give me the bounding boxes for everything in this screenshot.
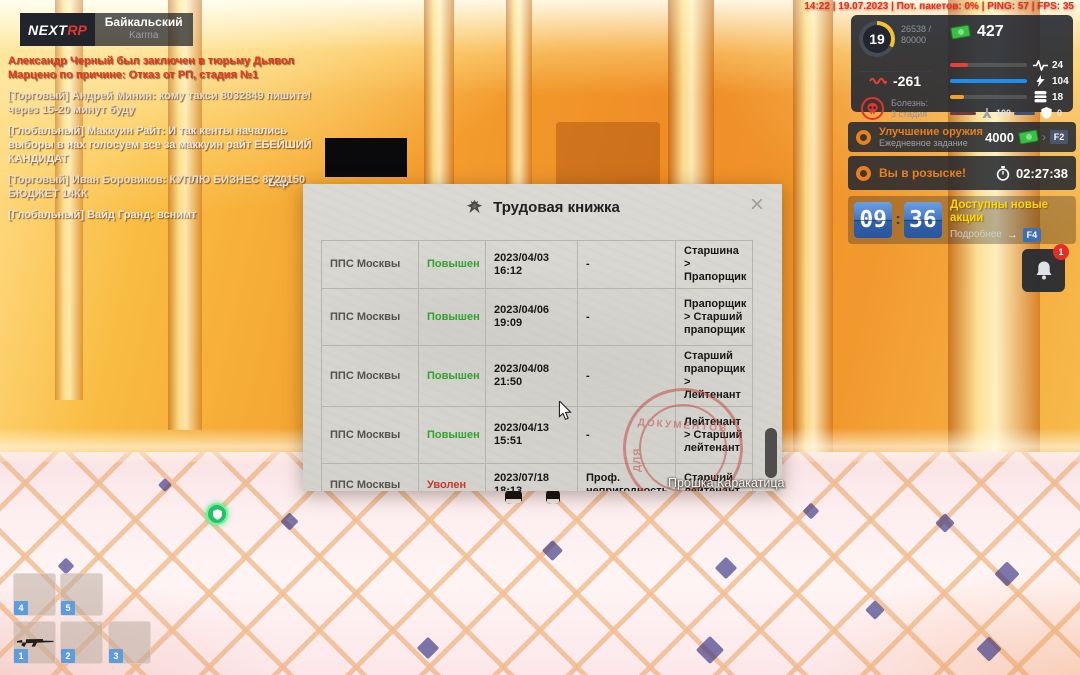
hotkey-f2-badge[interactable]: F2 [1050,130,1068,144]
game-screen: Бар NEXT RP Байкальский Karma Александр … [0,0,1080,675]
health-bar: 24 [950,59,1072,71]
oxygen-value: 100 [996,108,1011,118]
shield-icon [213,509,222,520]
disease-label: Болезнь: [891,98,928,109]
armor-value: 0 [1057,108,1062,118]
food-bar: 18 [950,91,1072,103]
chat-message: [Торговый] Иван Боровиков: КУПЛЮ БИЗНЕС … [8,173,324,201]
modal-title: Трудовая книжка [493,199,620,216]
promo-title: Доступны новые акции [950,199,1070,225]
server-mode: Karma [105,30,183,42]
cell-date: 2023/04/06 19:09 [486,289,578,346]
slot-number: 5 [61,601,75,615]
server-badge: Байкальский Karma [95,13,193,46]
daily-quest-panel[interactable]: Улучшение оружия Ежедневное задание 4000… [848,122,1076,152]
skull-icon [861,97,884,120]
food-value: 18 [1052,92,1072,103]
scrollbar-thumb[interactable] [765,428,777,478]
karma-value: -261 [893,73,921,89]
cell-reason: - [578,289,676,346]
clock-minutes: 36 [904,202,942,238]
status-bar: 14:22 | 19.07.2023 | Пот. пакетов: 0% | … [804,1,1074,12]
cell-org: ППС Москвы [322,346,419,407]
xp-max: 80000 [901,35,931,46]
disease-stage: 3 стадия [891,109,928,120]
wanted-panel[interactable]: Вы в розыске! 02:27:38 [848,156,1076,190]
clock-colon: : [895,211,900,229]
arrow-right-icon: → [1007,229,1018,241]
notification-count-badge: 1 [1053,244,1069,260]
logo-text-next: NEXT [28,22,67,38]
cell-org: ППС Москвы [322,241,419,289]
logo-text-rp: RP [67,22,86,38]
quest-subtitle: Ежедневное задание [879,138,985,149]
rifle-icon [17,635,54,650]
inventory-slot-4[interactable]: 4 [13,573,56,616]
inventory-slot-1[interactable]: 1 [13,621,56,664]
money-counter: 427 [951,23,1004,41]
mouse-cursor [558,401,572,421]
lungs-icon [981,108,993,118]
censored-region [325,138,407,177]
xp-counter: 26538 / 80000 [901,24,931,46]
cell-date: 2023/07/18 18:13 [486,464,578,492]
wanted-title: Вы в розыске! [879,167,996,179]
armor-shield-icon [1041,107,1052,119]
server-header: NEXT RP Байкальский Karma [20,13,193,46]
cell-org: ППС Москвы [322,407,419,464]
cell-rank: Старшина > Прапорщик [676,241,753,289]
cell-rank: Прапорщик > Старший прапорщик [676,289,753,346]
level-progress-ring: 19 [859,21,895,57]
chat-message: Александр Черный был заключен в тюрьму Д… [8,54,324,82]
table-row: ППС МосквыПовышен2023/04/06 19:09-Прапор… [322,289,753,346]
cell-date: 2023/04/03 16:12 [486,241,578,289]
quest-ring-icon [856,130,871,145]
clock-hours: 09 [854,202,892,238]
inventory-slot-3[interactable]: 3 [108,621,151,664]
xp-current: 26538 / [901,24,931,35]
oxygen-armor-row: 100 0 [950,107,1065,119]
checkpoint-marker [206,503,228,525]
promo-panel[interactable]: 09 : 36 Доступны новые акции Подробнее →… [848,196,1076,244]
cell-date: 2023/04/08 21:50 [486,346,578,407]
karma-counter: -261 [869,73,921,89]
slot-number: 2 [61,649,75,663]
cell-reason: - [578,241,676,289]
disease-status: Болезнь: 3 стадия [861,97,928,120]
table-row: ППС МосквыПовышен2023/04/03 16:12-Старши… [322,241,753,289]
health-value: 24 [1052,60,1072,71]
cell-status: Повышен [419,289,486,346]
hotkey-f4-badge[interactable]: F4 [1023,228,1041,242]
cell-status: Повышен [419,407,486,464]
chat-message: [Глобальный] Маккуин Райт: И так кенты н… [8,124,324,166]
lightning-icon [1033,75,1048,87]
slot-number: 3 [109,649,123,663]
cell-org: ППС Москвы [322,464,419,492]
wanted-ring-icon [856,166,871,181]
chevron-right-icon: › [1042,130,1046,144]
wanted-timer: 02:27:38 [1016,166,1068,181]
energy-value: 104 [1052,76,1072,87]
chat: Александр Черный был заключен в тюрьму Д… [8,54,324,229]
server-name: Байкальский [105,15,183,30]
food-icon [1033,91,1048,103]
bell-icon [1034,260,1054,281]
inventory-slot-2[interactable]: 2 [60,621,103,664]
stopwatch-icon [996,166,1010,181]
slot-number: 4 [14,601,28,615]
cell-org: ППС Москвы [322,289,419,346]
close-icon[interactable]: × [750,193,764,217]
nextrp-logo: NEXT RP [20,13,95,46]
slot-number: 1 [14,649,28,663]
promo-more-link[interactable]: Подробнее [950,229,1002,240]
player-nametag: Прошка Каракатица [668,476,784,490]
cell-status: Повышен [419,241,486,289]
employment-record-modal: Трудовая книжка × ППС МосквыПовышен2023/… [303,184,782,491]
cell-status: Повышен [419,346,486,407]
quest-reward: 4000 [985,130,1014,145]
level-value: 19 [863,25,891,53]
inventory-slot-5[interactable]: 5 [60,573,103,616]
karma-wave-icon [869,76,887,86]
quest-title: Улучшение оружия [879,126,985,138]
cash-icon [950,24,971,39]
double-eagle-emblem-icon [465,198,484,217]
notifications-button[interactable]: 1 [1022,249,1065,292]
chat-message: [Торговый] Андрей Минин: кому такси 8032… [8,89,324,117]
chat-message: [Глобальный] Вайд Гранд: вснимт [8,208,324,222]
stamp-text: ДЛЯ [632,448,643,473]
energy-bar: 104 [950,75,1072,87]
cash-icon [1018,129,1039,144]
cell-status: Уволен [419,464,486,492]
hud-panel: 19 26538 / 80000 427 -261 [851,15,1073,112]
money-value: 427 [977,23,1004,41]
pulse-icon [1033,60,1048,71]
